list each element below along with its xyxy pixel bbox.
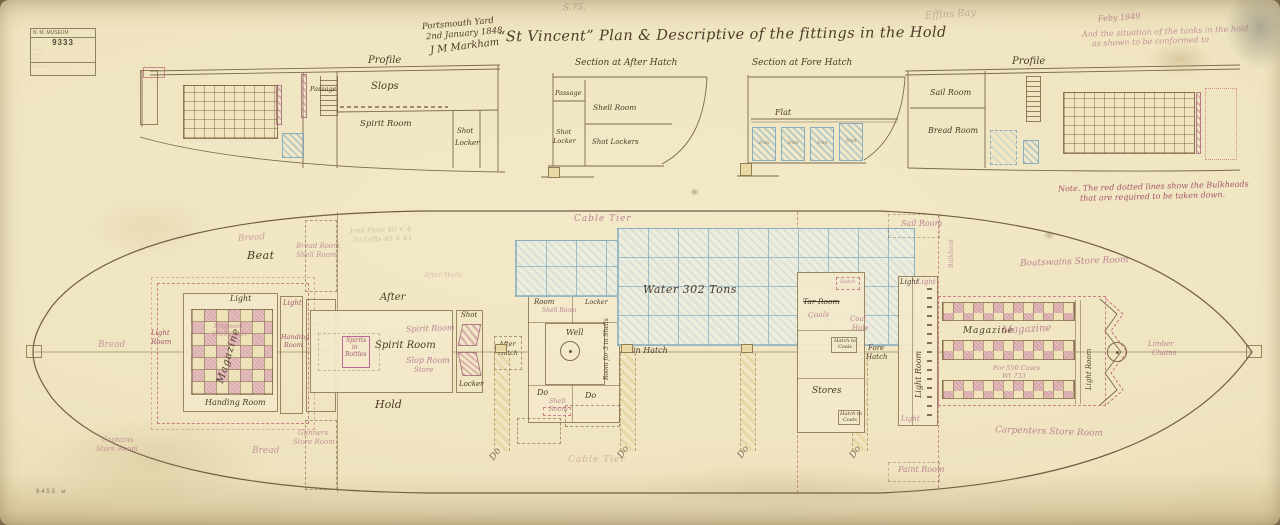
sheet-title: “St Vincent” Plan & Descriptive of the f… bbox=[498, 26, 947, 46]
tank-mark: Iron bbox=[846, 139, 857, 144]
profile-fwd-title: Profile bbox=[368, 56, 401, 67]
sail-room-profile: Sail Room bbox=[930, 89, 971, 98]
magazine-band bbox=[942, 302, 1075, 321]
passage-ladder bbox=[320, 76, 338, 116]
spirit-room-red-label: Spirit Room bbox=[406, 324, 455, 334]
paper-stain bbox=[1148, 42, 1212, 76]
magazine-bulkhead-hatch bbox=[276, 85, 282, 125]
foxing-stain bbox=[85, 195, 215, 260]
cable-tier-bottom: Cable Tier bbox=[568, 456, 626, 466]
locker-label: Locker bbox=[459, 381, 484, 389]
light-room-line1: Light bbox=[151, 330, 170, 338]
sail-room-label: Sail Room bbox=[901, 220, 942, 229]
stamp-header: N. M. MUSEUM bbox=[31, 29, 95, 38]
tar-room-label: Tar Room bbox=[803, 298, 840, 306]
tank-profile-fwd bbox=[282, 133, 304, 158]
light-label-top: Light bbox=[900, 279, 919, 287]
museum-stamp: N. M. MUSEUM 9333 · · · · · · · · · · · … bbox=[30, 28, 96, 76]
ink-speck bbox=[1043, 230, 1055, 240]
well-label: Well bbox=[566, 329, 583, 338]
limber-strip bbox=[740, 353, 756, 451]
hatch-to-coals-line2: Coals bbox=[838, 345, 852, 350]
pencil-annotation: Effins Bay bbox=[925, 8, 977, 22]
passage-label: Passage bbox=[310, 86, 337, 93]
handing-room-red2: Room bbox=[284, 342, 303, 349]
bottles-line3: Bottles bbox=[345, 352, 366, 358]
limber-line2: Chains bbox=[1152, 350, 1176, 358]
keel-block bbox=[740, 163, 752, 176]
stamp-footer: · · · · · · bbox=[31, 62, 95, 70]
boatswains-store-label: Boatswains Store Room bbox=[1020, 256, 1129, 270]
pencil-note-line2: To Lofts 40 × 43 bbox=[353, 235, 412, 245]
shot-locker-profile-label2: Locker bbox=[455, 140, 480, 148]
faint-red-note: After Walls bbox=[424, 272, 463, 280]
light-room-rotated: Light Room bbox=[915, 351, 924, 398]
shell-note-rotated: Room for 5 in Shells bbox=[604, 318, 610, 380]
profile-aft-title: Profile bbox=[1012, 57, 1045, 68]
iron-tank: Iron bbox=[781, 127, 805, 161]
slops-label: Slops bbox=[371, 82, 399, 93]
section-after-shot1: Shot bbox=[556, 129, 571, 136]
beat-pencil-label: Beat bbox=[247, 250, 275, 262]
light-room-line2: Room bbox=[151, 339, 171, 347]
section-after-shot2: Locker bbox=[553, 138, 576, 145]
bread-label: Bread bbox=[252, 447, 279, 457]
hatchway-dashed bbox=[517, 418, 561, 444]
captains-store-line1: Captains bbox=[102, 437, 133, 445]
ship-plan-sheet: N. M. MUSEUM 9333 · · · · · · · · · · · … bbox=[0, 0, 1280, 525]
stern-tip-fitting bbox=[26, 345, 42, 358]
light-label-red: Light bbox=[917, 279, 936, 287]
magazine-band bbox=[942, 380, 1075, 399]
profile-bulkhead-hatch bbox=[1196, 92, 1201, 154]
tank-mark: Iron bbox=[817, 141, 828, 146]
red-hatch-label: Hatch bbox=[840, 280, 855, 285]
lamp-row bbox=[927, 284, 932, 416]
red-note-line3: as shown to be conformed to bbox=[1092, 36, 1209, 49]
water-tanks-upper bbox=[515, 240, 618, 297]
spirit-room-profile-label: Spirit Room bbox=[360, 120, 412, 129]
fore-hatch-ladder bbox=[1026, 76, 1041, 122]
section-fore-title: Section at Fore Hatch bbox=[752, 59, 852, 69]
iron-tank: Iron bbox=[839, 123, 863, 161]
cases-note-line2: Wt 733 bbox=[1002, 373, 1026, 380]
magazine-light-label: Light bbox=[230, 295, 251, 304]
magazine-end-wall bbox=[1075, 300, 1076, 404]
section-after-shell-room: Shell Room bbox=[593, 104, 636, 112]
light-label-bottom: Light bbox=[901, 416, 920, 424]
stamp-number: 9333 bbox=[31, 38, 95, 47]
hold-label: Hold bbox=[375, 399, 402, 411]
slop-room-label: Slop Room bbox=[406, 357, 450, 366]
accession-mark: 6453 w bbox=[36, 488, 67, 495]
iron-tank: Iron bbox=[810, 127, 834, 161]
coal-hole-line1: Coal bbox=[850, 316, 866, 324]
cases-note-line1: For 550 Cases bbox=[993, 365, 1040, 372]
fore-hatch-line2: Hatch bbox=[866, 354, 888, 362]
limber-strip bbox=[620, 353, 636, 451]
hatchway-dashed bbox=[565, 405, 620, 427]
section-fore-flat: Flat bbox=[775, 109, 791, 118]
bread-label: Bread bbox=[238, 233, 266, 245]
section-after-title: Section at After Hatch bbox=[575, 59, 677, 69]
coals-label: Coals bbox=[808, 310, 829, 319]
magazine-band bbox=[942, 340, 1075, 360]
stores-label: Stores bbox=[812, 387, 841, 397]
shell-room-red-b1: Shell bbox=[549, 398, 566, 405]
hammock-rail bbox=[340, 106, 448, 108]
lobby-light-label: Light bbox=[283, 300, 302, 308]
bread-label: Bread bbox=[98, 341, 125, 351]
tank-profile-aft bbox=[1023, 140, 1039, 164]
fore-block-divider bbox=[797, 378, 865, 379]
bow-tip-fitting bbox=[1246, 345, 1262, 358]
passage-bulkhead-hatch bbox=[301, 74, 307, 118]
chain-cable-line2: Locker bbox=[585, 299, 608, 306]
stern-side-room bbox=[305, 420, 337, 490]
red-date-note: Feby 1849 bbox=[1098, 13, 1141, 25]
limber-strip bbox=[494, 353, 510, 451]
after-label: After bbox=[380, 293, 405, 304]
tank-mark: Iron bbox=[788, 141, 799, 146]
limber-line1: Limber bbox=[1148, 341, 1174, 349]
tank-stowage-grid bbox=[1063, 92, 1195, 154]
corner-stain bbox=[1225, 0, 1280, 70]
ink-speck bbox=[690, 188, 699, 196]
water-tons-label: Water 302 Tons bbox=[643, 284, 737, 296]
bulkhead-label: Bulkhead bbox=[949, 239, 955, 268]
keel-chock bbox=[741, 344, 753, 353]
slop-store-label: Store bbox=[414, 367, 433, 375]
paint-room-label: Paint Room bbox=[898, 466, 945, 475]
bulkhead-note-line2: that are required to be taken down. bbox=[1080, 191, 1225, 203]
coal-hole-line2: Hole bbox=[852, 325, 869, 333]
ditto-label: Do bbox=[537, 389, 548, 398]
keel-chock bbox=[621, 344, 633, 353]
ditto-label: Do bbox=[585, 392, 596, 401]
shot-locker-profile-label1: Shot bbox=[457, 128, 473, 136]
tank-profile-aft-light bbox=[990, 130, 1017, 165]
bread-room-profile: Bread Room bbox=[928, 127, 978, 136]
section-after-passage: Passage bbox=[555, 90, 582, 97]
magazine-end-wall bbox=[1080, 300, 1081, 404]
shelfmark: S.75. bbox=[563, 4, 586, 15]
shell-room-line2: Room bbox=[534, 299, 554, 307]
pump-well-center bbox=[569, 350, 572, 353]
aft-magazine-profile-grid bbox=[183, 85, 278, 139]
light-room-rotated: Light Room bbox=[1086, 349, 1094, 390]
iron-tank: Iron bbox=[752, 127, 776, 161]
captains-store-line2: Store Room bbox=[96, 446, 138, 454]
light-passage-aft bbox=[280, 296, 303, 414]
passage-divider bbox=[912, 276, 913, 426]
bulkhead-dotted-box bbox=[1205, 88, 1237, 160]
cable-tier-top: Cable Tier bbox=[574, 215, 632, 225]
foremast-center bbox=[1116, 351, 1119, 354]
shell-room-red: Shell Room bbox=[542, 308, 577, 314]
spirit-room-label: Spirit Room bbox=[375, 341, 436, 352]
section-after-lockers: Shot Lockers bbox=[592, 139, 639, 147]
red-hatchway bbox=[543, 407, 571, 416]
rudder-trunk bbox=[140, 70, 158, 125]
carpenters-store-label: Carpenters Store Room bbox=[995, 426, 1103, 439]
handing-room-label: Handing Room bbox=[205, 399, 266, 408]
tank-mark: Iron bbox=[759, 141, 770, 146]
shot-label: Shot bbox=[461, 312, 477, 320]
hatch-to-coals-line2: Coals bbox=[843, 418, 857, 423]
keel-chock bbox=[495, 344, 507, 353]
well-block-divider bbox=[528, 385, 620, 386]
fore-hatch-line1: Fore bbox=[868, 345, 884, 353]
keel-block bbox=[548, 167, 560, 178]
